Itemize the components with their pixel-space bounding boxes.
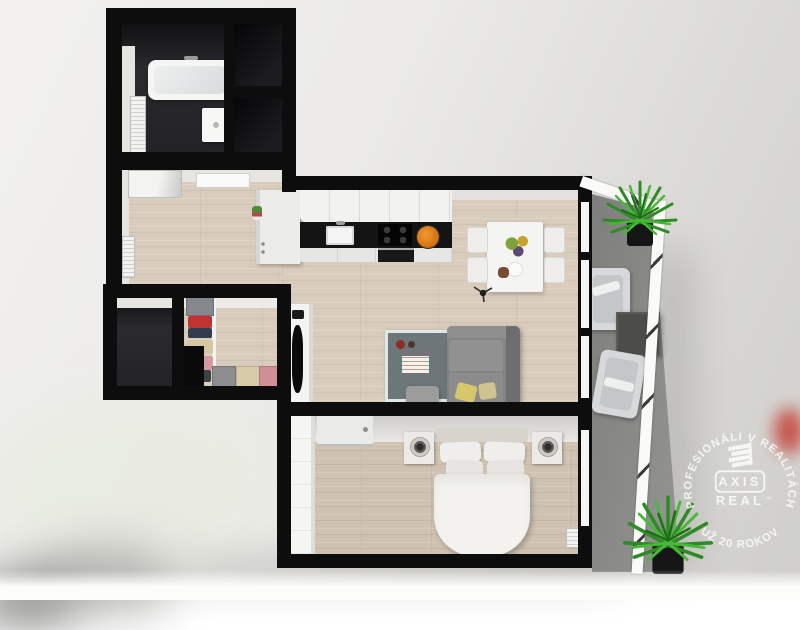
floorplan-3d-render: PROFESIONÁLI V REALITÁCH UŽ 20 ROKOV AXI… [0,0,800,600]
kitchen-sink [326,226,354,245]
pastry [498,267,509,278]
door-handle-icon [363,427,368,432]
stamp-arc-bottom-text: UŽ 20 ROKOV [698,525,781,550]
wall [282,176,592,190]
dining-chair [544,227,565,253]
fruit-bowl [417,226,439,248]
brand-real-text: REAL [716,493,765,508]
tv [292,325,303,393]
oven [378,248,414,262]
dining-chair [544,257,565,283]
bed-headboard [436,428,528,442]
storage-niche-upper [234,24,282,86]
wall [106,152,282,170]
wall [224,24,234,158]
kitchen-tall-cabinet [256,190,300,264]
yellow-pillow [478,382,497,400]
sofa-backrest [506,326,520,408]
potted-plant [598,172,682,260]
cooktop [378,224,412,246]
brand-axis-text: AXIS [718,474,762,489]
bathtub-basin [154,66,226,94]
window [581,430,589,526]
storage-room-floor [117,298,172,386]
wall [103,284,117,400]
axis-real-watermark: PROFESIONÁLI V REALITÁCH UŽ 20 ROKOV AXI… [670,419,800,559]
red-cup [396,340,405,349]
sink-faucet-icon [213,122,219,128]
plate [507,262,523,277]
storage-niche-lower [234,98,282,152]
trademark-symbol: ™ [766,497,772,503]
dining-chair [467,227,488,253]
mug [408,341,415,348]
kitchen-upper-cabinets [300,190,452,222]
hallway-radiator [122,236,135,278]
wall [277,402,592,416]
bedside-lamp [538,437,558,457]
sofa-cushion [449,340,503,371]
floor-lamp [472,284,494,304]
bedroom-door [317,416,373,446]
clothes-pile [188,316,212,328]
table-centerpiece [504,234,530,258]
soundbar [292,310,304,319]
window [581,260,589,328]
window [581,336,589,398]
sink-faucet-icon [336,221,345,225]
dining-top-wall-face [452,190,578,200]
wall [277,402,291,568]
wall [277,284,291,404]
sofa-armrest [447,326,506,338]
wall [103,386,291,400]
bath-faucet-icon [184,56,198,60]
background-white-band [0,570,800,600]
dining-chair [467,257,488,283]
hall-mirror [196,173,250,188]
flower-decoration [252,206,262,220]
storage-room-wall-face [117,298,172,308]
storage-box [236,366,260,388]
wall [282,8,296,192]
clothes-pile [186,296,214,316]
wall [106,8,296,24]
duvet [434,474,530,556]
magazine [402,356,429,373]
bathroom-radiator [130,96,146,154]
wall [277,554,592,568]
kitchen-counter-front [300,248,452,262]
wardrobe [291,416,315,554]
bathtub [148,60,232,100]
wall [172,292,184,390]
wall [103,284,291,298]
clothes-pile [188,328,212,338]
wall [234,86,282,98]
building-icon [728,442,753,468]
entry-door [128,170,182,198]
window [581,202,589,252]
bedside-lamp [410,437,430,457]
storage-box [212,366,236,388]
